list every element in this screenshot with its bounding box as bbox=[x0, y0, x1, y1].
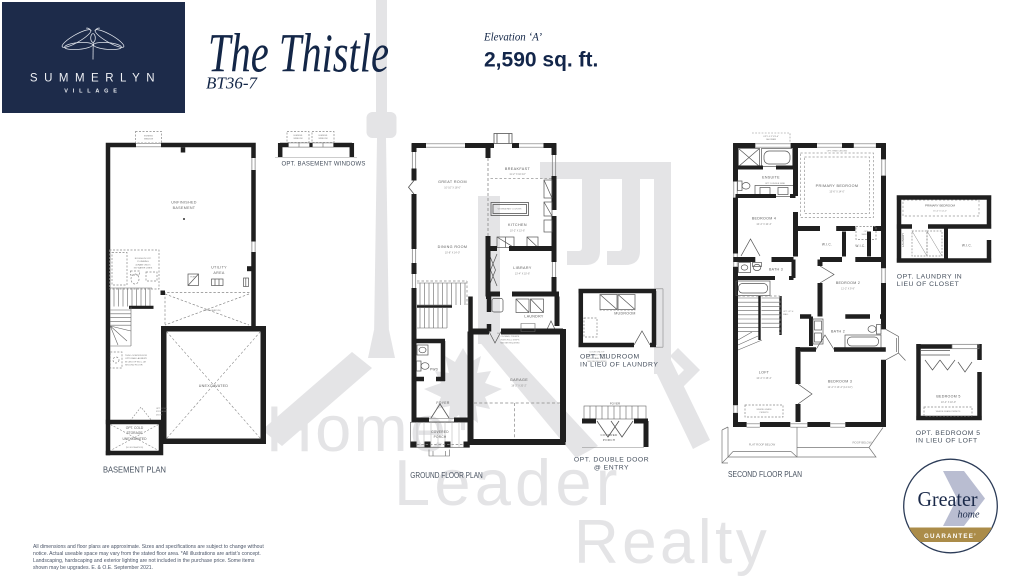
svg-text:AREA: AREA bbox=[213, 271, 224, 275]
svg-text:10’-4” X 10’-4”: 10’-4” X 10’-4” bbox=[756, 223, 771, 226]
svg-text:BASEMENT PLAN: BASEMENT PLAN bbox=[103, 466, 166, 475]
svg-text:PRIMARY BEDROOM: PRIMARY BEDROOM bbox=[925, 204, 955, 208]
svg-text:WINDOW: WINDOW bbox=[293, 138, 302, 140]
svg-text:KITCHEN: KITCHEN bbox=[508, 223, 527, 227]
svg-text:@ ENTRY: @ ENTRY bbox=[594, 464, 629, 471]
svg-text:MUDROOM: MUDROOM bbox=[614, 312, 635, 316]
svg-text:UTILITY: UTILITY bbox=[211, 266, 227, 270]
svg-text:LAUNDRY: LAUNDRY bbox=[901, 233, 905, 247]
svg-text:OPT. BASEMENT WINDOWS: OPT. BASEMENT WINDOWS bbox=[282, 162, 366, 168]
svg-text:FLAT ROOF BELOW: FLAT ROOF BELOW bbox=[749, 443, 776, 447]
svg-text:NO WATER LINES: NO WATER LINES bbox=[134, 267, 153, 270]
svg-text:FURN: FURN bbox=[190, 277, 196, 279]
svg-text:GROUND FLOOR PLAN: GROUND FLOOR PLAN bbox=[410, 471, 483, 480]
svg-text:BATH 3: BATH 3 bbox=[769, 268, 783, 272]
svg-text:10’-4” X 10’-9”: 10’-4” X 10’-9” bbox=[941, 401, 956, 404]
svg-text:(NO EXCAVATION): (NO EXCAVATION) bbox=[126, 446, 144, 449]
svg-text:UNFINISHED: UNFINISHED bbox=[171, 201, 197, 205]
svg-text:BT36-7: BT36-7 bbox=[206, 74, 259, 93]
svg-text:Elevation ‘A’: Elevation ‘A’ bbox=[483, 30, 542, 44]
svg-text:VILLAGE: VILLAGE bbox=[64, 89, 121, 95]
svg-text:EGRESS: EGRESS bbox=[294, 135, 303, 137]
svg-text:UNEXCAVATED: UNEXCAVATED bbox=[199, 384, 229, 388]
svg-text:EGRESS: EGRESS bbox=[319, 135, 328, 137]
svg-text:BEDROOM 2: BEDROOM 2 bbox=[836, 281, 860, 285]
svg-text:THIS LOCATION FOR: THIS LOCATION FOR bbox=[125, 354, 147, 357]
svg-text:OPT. COLD: OPT. COLD bbox=[156, 408, 167, 410]
svg-text:Realty: Realty bbox=[574, 508, 770, 577]
svg-text:11’-2” X 9’-9”: 11’-2” X 9’-9” bbox=[841, 288, 855, 291]
svg-text:BATH 2: BATH 2 bbox=[831, 330, 845, 334]
svg-text:ROOF BELOW: ROOF BELOW bbox=[853, 441, 872, 445]
svg-text:COVERED: COVERED bbox=[431, 430, 449, 434]
svg-text:DINING ROOM: DINING ROOM bbox=[438, 245, 468, 249]
svg-text:LIEU OF CLOSET: LIEU OF CLOSET bbox=[897, 281, 960, 288]
svg-text:IN LIEU OF W.I.C. AT: IN LIEU OF W.I.C. AT bbox=[125, 360, 147, 363]
svg-text:SHOWER: SHOWER bbox=[766, 139, 776, 141]
svg-text:IN LIEU OF LOFT: IN LIEU OF LOFT bbox=[916, 438, 978, 445]
svg-text:PORCH: PORCH bbox=[603, 438, 615, 442]
svg-text:PRIMARY BEDROOM: PRIMARY BEDROOM bbox=[816, 184, 859, 188]
svg-text:STORAGE: STORAGE bbox=[156, 410, 167, 413]
svg-text:OPT. 4’-2”X3’-0”: OPT. 4’-2”X3’-0” bbox=[763, 136, 779, 138]
svg-text:BASEMENT: BASEMENT bbox=[173, 206, 196, 210]
svg-text:shown may be upgrades. E. & O.: shown may be upgrades. E. & O.E. Septemb… bbox=[33, 565, 153, 571]
svg-text:PORCH: PORCH bbox=[434, 435, 447, 439]
svg-text:WALL: WALL bbox=[783, 313, 789, 316]
svg-text:OPT. COLD: OPT. COLD bbox=[126, 426, 144, 430]
svg-text:notice. Actual useable space m: notice. Actual useable space may vary fr… bbox=[33, 551, 261, 557]
svg-text:OPT. MUDROOM: OPT. MUDROOM bbox=[580, 354, 640, 361]
svg-text:SECOND FLOOR PLAN: SECOND FLOOR PLAN bbox=[728, 470, 802, 479]
svg-text:FOYER: FOYER bbox=[610, 402, 621, 406]
svg-text:10’-4” X 15’-4”: 10’-4” X 15’-4” bbox=[756, 377, 771, 380]
svg-text:DOOR: DOOR bbox=[156, 414, 163, 416]
svg-text:PWD: PWD bbox=[430, 368, 439, 372]
svg-text:COVERED: COVERED bbox=[600, 433, 618, 437]
svg-text:13’-4” X 10’-6”: 13’-4” X 10’-6” bbox=[515, 273, 530, 276]
svg-text:BREAKFAST: BREAKFAST bbox=[505, 167, 531, 171]
svg-text:WINDOW: WINDOW bbox=[144, 139, 153, 141]
svg-text:12’-4” X 13’-2” (14’-10”): 12’-4” X 13’-2” (14’-10”) bbox=[828, 386, 853, 389]
svg-text:STORAGE: STORAGE bbox=[126, 431, 143, 435]
svg-text:15’-6” X 14’-0”: 15’-6” X 14’-0” bbox=[933, 211, 947, 213]
svg-text:UNEXCAVATED: UNEXCAVATED bbox=[123, 437, 148, 441]
svg-text:IN LIEU OF LAUNDRY: IN LIEU OF LAUNDRY bbox=[580, 361, 658, 368]
svg-text:FOYER: FOYER bbox=[436, 401, 449, 405]
svg-text:OPT. DOUBLE SINK: OPT. DOUBLE SINK bbox=[765, 183, 786, 185]
svg-text:home: home bbox=[958, 510, 981, 521]
svg-text:SECOND FLOOR: SECOND FLOOR bbox=[125, 365, 143, 367]
svg-text:OPT. 42” H: OPT. 42” H bbox=[783, 311, 794, 313]
svg-text:BEDROOM 5: BEDROOM 5 bbox=[936, 395, 960, 399]
svg-text:11’-2” X 10’-10”: 11’-2” X 10’-10” bbox=[509, 173, 526, 176]
svg-text:W.I.C.: W.I.C. bbox=[822, 243, 832, 247]
svg-text:OPT. BEDROOM 5: OPT. BEDROOM 5 bbox=[916, 430, 981, 437]
svg-text:PLUMBING: PLUMBING bbox=[137, 261, 149, 263]
svg-text:W.I.C.: W.I.C. bbox=[962, 244, 972, 248]
svg-text:GARAGE: GARAGE bbox=[510, 378, 528, 382]
svg-text:MAY BE REQUIRED: MAY BE REQUIRED bbox=[500, 342, 520, 345]
svg-text:LAUNDRY: LAUNDRY bbox=[524, 315, 544, 319]
svg-text:WINDOW: WINDOW bbox=[318, 138, 327, 140]
svg-text:All dimensions and floor plans: All dimensions and floor plans are appro… bbox=[33, 544, 264, 550]
svg-text:BEDROOM 3: BEDROOM 3 bbox=[828, 380, 852, 384]
svg-text:OPTIONAL LAUNDRY: OPTIONAL LAUNDRY bbox=[125, 357, 148, 360]
svg-text:PERMITS: PERMITS bbox=[760, 412, 770, 414]
svg-text:(NO EXCAVATION): (NO EXCAVATION) bbox=[203, 309, 221, 312]
svg-text:ROUGH-IN 3 PC: ROUGH-IN 3 PC bbox=[135, 258, 152, 260]
svg-text:EGRESS: EGRESS bbox=[144, 136, 153, 138]
svg-text:LOFT: LOFT bbox=[759, 371, 770, 375]
svg-text:18’-2” X 20’-2”: 18’-2” X 20’-2” bbox=[511, 385, 526, 388]
svg-text:15’-6” X 14’-0”: 15’-6” X 14’-0” bbox=[829, 191, 844, 194]
svg-text:(DRAIN ONLY): (DRAIN ONLY) bbox=[136, 263, 151, 266]
svg-text:W/ BREAKFAST COUNTER: W/ BREAKFAST COUNTER bbox=[498, 208, 522, 211]
svg-text:OPT. LAUNDRY IN: OPT. LAUNDRY IN bbox=[897, 274, 962, 281]
svg-text:2,590 sq. ft.: 2,590 sq. ft. bbox=[484, 49, 598, 72]
svg-text:HDRS FULL STEPS: HDRS FULL STEPS bbox=[501, 339, 520, 341]
svg-text:Greater: Greater bbox=[918, 487, 978, 511]
svg-text:SUMMERLYN: SUMMERLYN bbox=[30, 73, 161, 85]
svg-text:GREAT ROOM: GREAT ROOM bbox=[438, 180, 467, 184]
svg-text:GUARANTEE’: GUARANTEE’ bbox=[924, 533, 977, 540]
svg-text:WHERE GRADE: WHERE GRADE bbox=[756, 408, 772, 411]
svg-text:W.I.C.: W.I.C. bbox=[855, 244, 865, 248]
svg-text:ON MAIN, PRIVATE: ON MAIN, PRIVATE bbox=[501, 335, 520, 338]
svg-text:WHERE GRADE PERMITS: WHERE GRADE PERMITS bbox=[936, 410, 961, 413]
svg-text:10’-2” X 13’-6”: 10’-2” X 13’-6” bbox=[510, 230, 525, 233]
svg-text:ENSUITE: ENSUITE bbox=[762, 176, 780, 180]
svg-text:Landscaping, hardscaping and e: Landscaping, hardscaping and exterior li… bbox=[33, 558, 255, 564]
svg-text:OPT. TRAY CEILING: OPT. TRAY CEILING bbox=[827, 150, 848, 153]
svg-text:BEDROOM 4: BEDROOM 4 bbox=[752, 217, 776, 221]
svg-text:OPT. DOUBLE DOOR: OPT. DOUBLE DOOR bbox=[574, 457, 649, 464]
svg-text:LIBRARY: LIBRARY bbox=[513, 266, 532, 270]
svg-text:10’-8” X 14’-0”: 10’-8” X 14’-0” bbox=[445, 252, 460, 255]
svg-text:10’-10” X 18’-0”: 10’-10” X 18’-0” bbox=[444, 187, 461, 190]
